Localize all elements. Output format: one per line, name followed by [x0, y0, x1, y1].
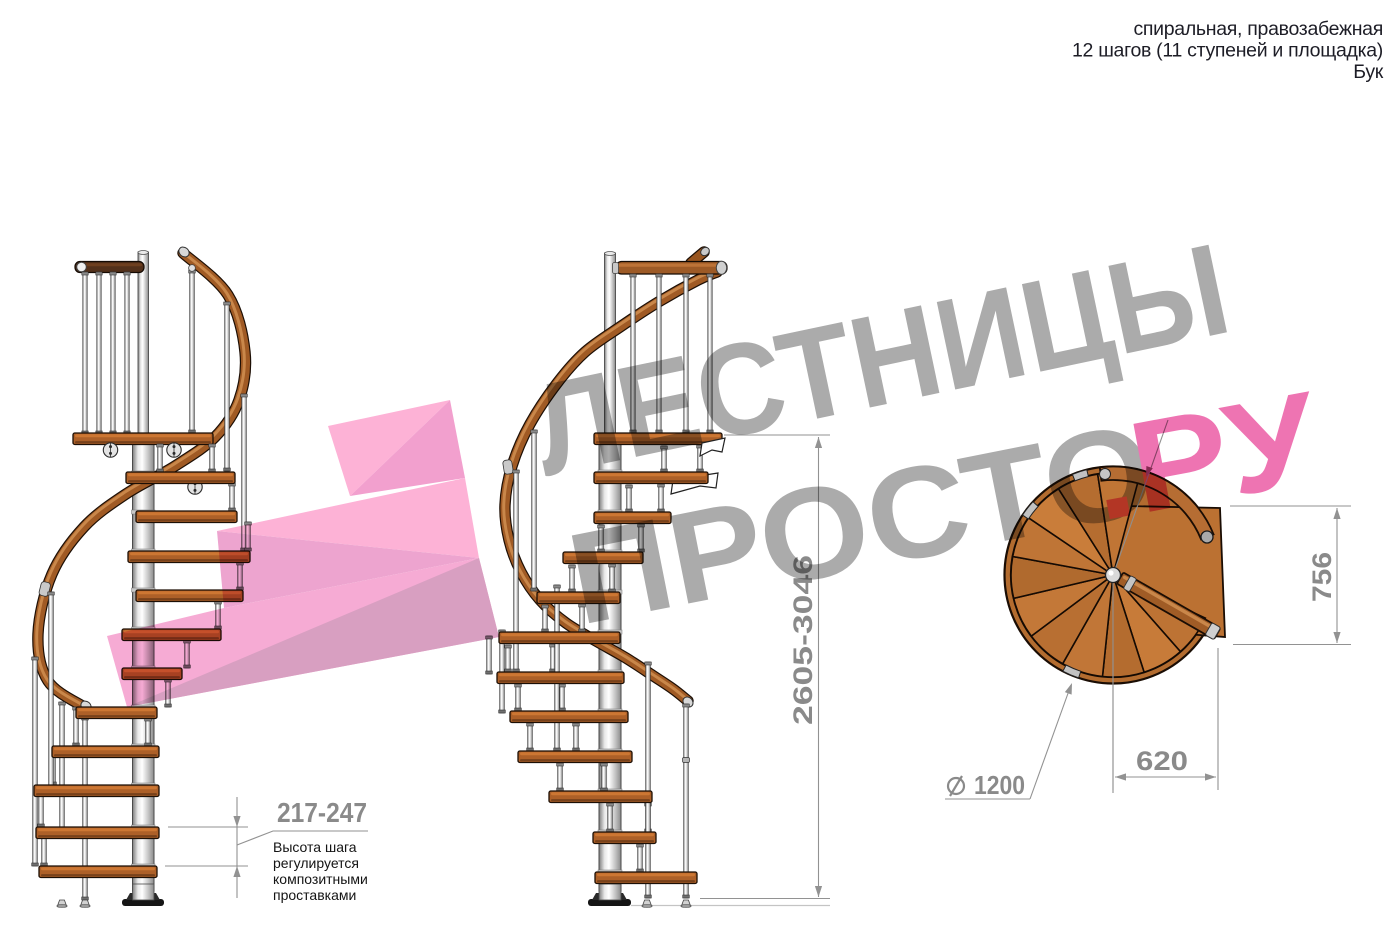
svg-text:12 шагов (11 ступеней и площад: 12 шагов (11 ступеней и площадка): [1072, 40, 1383, 62]
svg-text:217-247: 217-247: [277, 797, 367, 828]
svg-text:спиральная, правозабежная: спиральная, правозабежная: [1133, 18, 1383, 40]
svg-text:Высота шагарегулируетсякомпози: Высота шагарегулируетсякомпозитнымипрост…: [273, 839, 368, 903]
svg-text:1200: 1200: [974, 770, 1025, 800]
svg-text:756: 756: [1307, 552, 1337, 602]
svg-text:620: 620: [1136, 746, 1188, 776]
svg-text:Бук: Бук: [1353, 61, 1384, 83]
